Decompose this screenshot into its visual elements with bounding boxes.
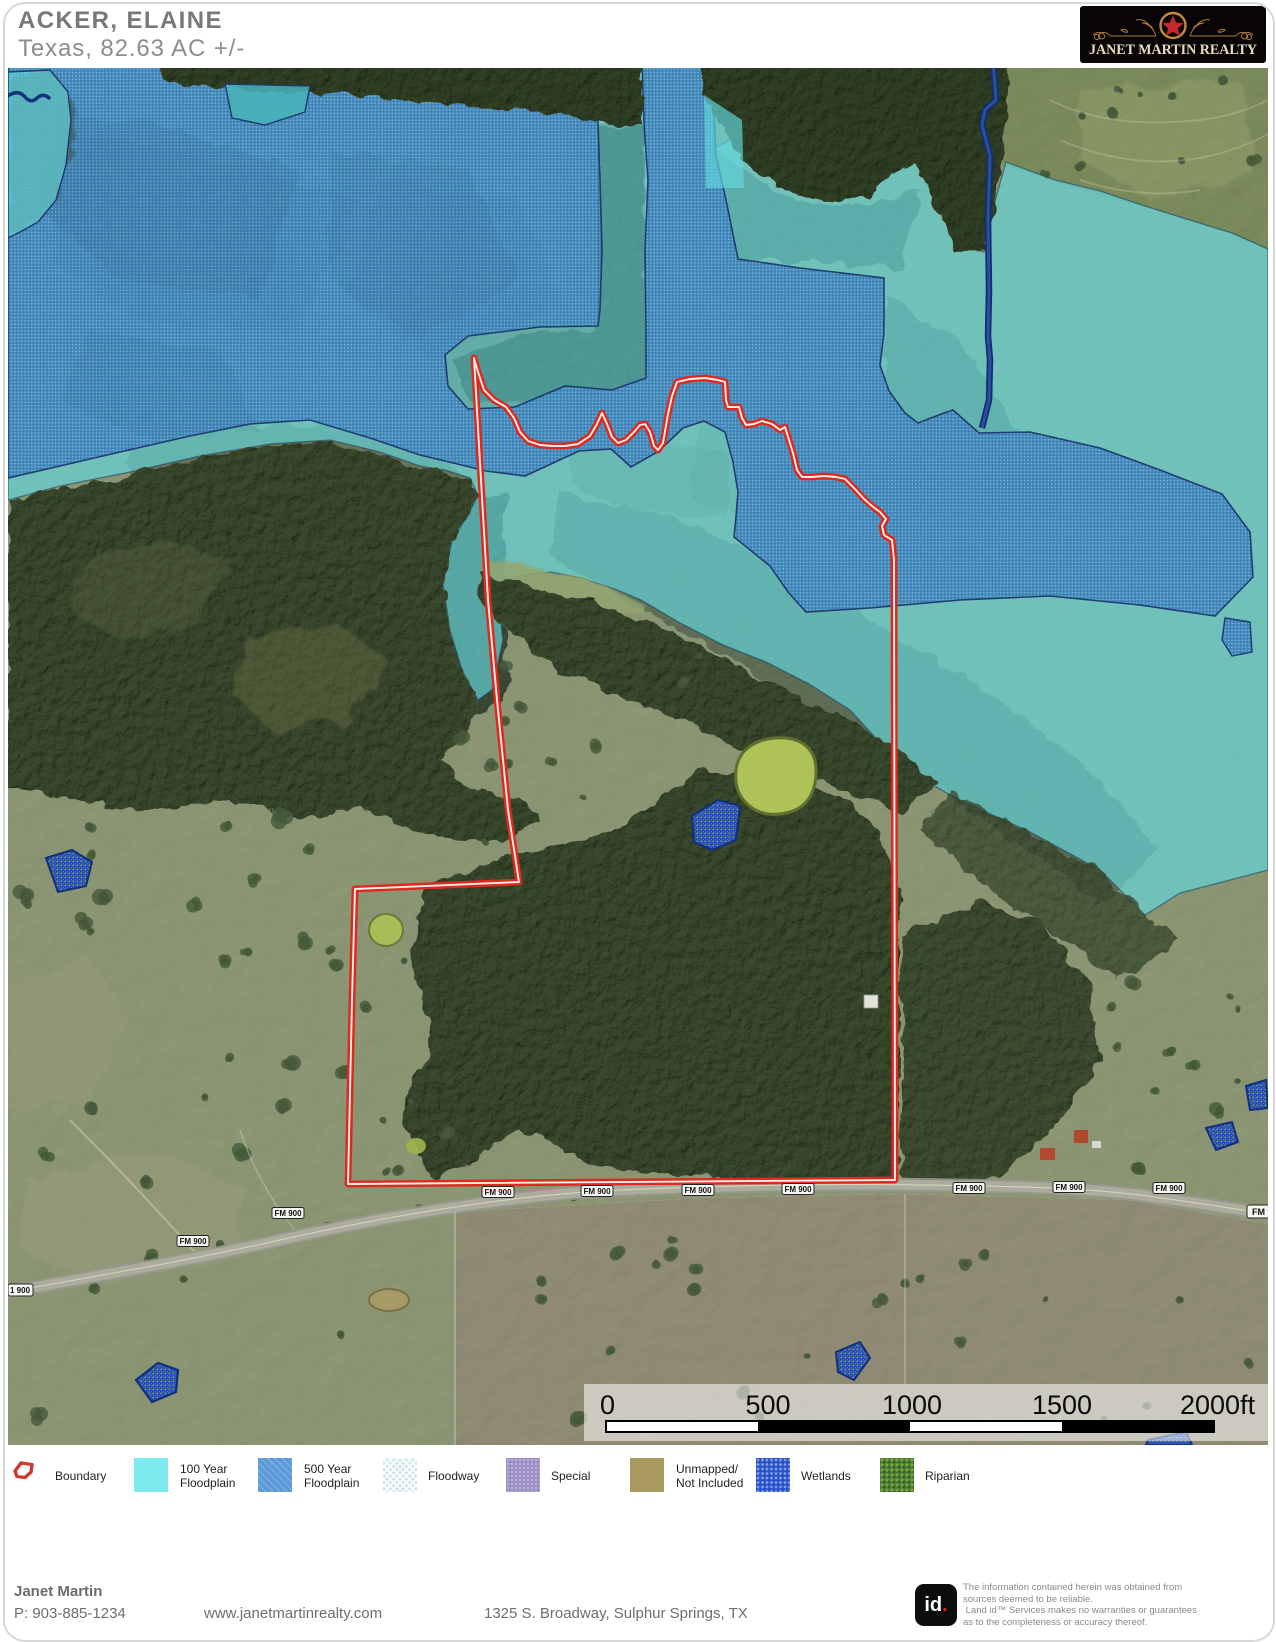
- svg-text:0: 0: [600, 1390, 615, 1420]
- svg-text:FM 900: FM 900: [1155, 1184, 1183, 1193]
- svg-text:FM 900: FM 900: [955, 1184, 983, 1193]
- svg-text:1 900: 1 900: [10, 1286, 31, 1295]
- svg-text:FM 9: FM 9: [1252, 1207, 1268, 1217]
- svg-text:FM 900: FM 900: [274, 1209, 302, 1218]
- svg-text:FM 900: FM 900: [583, 1187, 611, 1196]
- svg-text:JANET MARTIN REALTY: JANET MARTIN REALTY: [1089, 42, 1258, 58]
- svg-text:500: 500: [745, 1390, 790, 1420]
- svg-text:FM 900: FM 900: [684, 1186, 712, 1195]
- svg-text:1000: 1000: [882, 1390, 942, 1420]
- svg-text:FM 900: FM 900: [484, 1188, 512, 1197]
- svg-text:FM 900: FM 900: [179, 1237, 207, 1246]
- svg-text:FM 900: FM 900: [784, 1185, 812, 1194]
- svg-text:2000ft: 2000ft: [1180, 1390, 1256, 1420]
- svg-text:1500: 1500: [1032, 1390, 1092, 1420]
- svg-text:FM 900: FM 900: [1055, 1183, 1083, 1192]
